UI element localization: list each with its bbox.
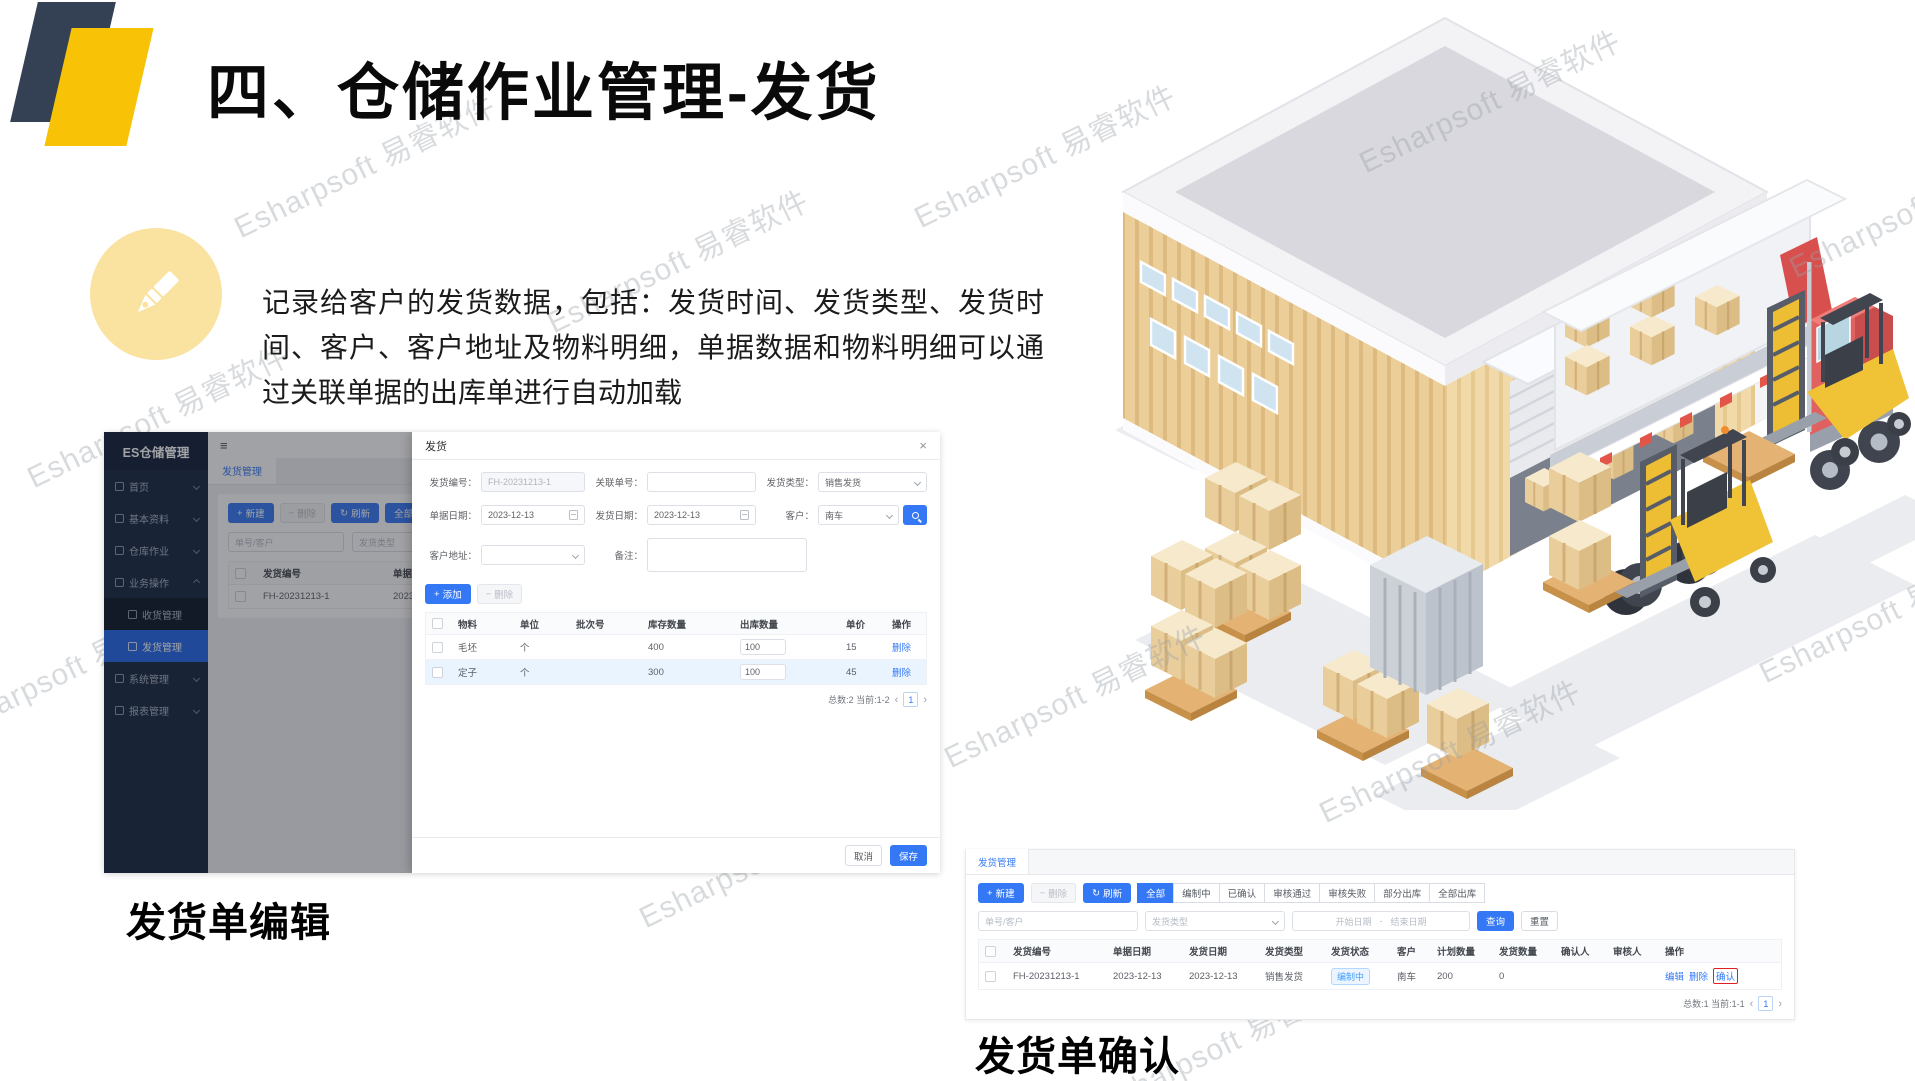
tab-shipping-management[interactable]: 发货管理 — [966, 849, 1029, 874]
minus-icon: − — [486, 589, 492, 600]
prev-page-icon[interactable]: ‹ — [895, 694, 899, 706]
chevron-down-icon — [1272, 917, 1279, 924]
ship-type-select[interactable]: 销售发货 — [818, 472, 927, 492]
pagination-summary: 总数:1 当前:1-1 — [1683, 997, 1745, 1010]
remark-textarea[interactable] — [647, 538, 807, 572]
table-header-row: 发货编号 单据日期 发货日期 发货类型 发货状态 客户 计划数量 发货数量 确认… — [979, 940, 1781, 963]
status-filter-approved[interactable]: 审核通过 — [1264, 883, 1320, 903]
pen-bullet-circle — [90, 228, 222, 360]
field-customer: 客户： 南车 — [762, 505, 927, 525]
save-button[interactable]: 保存 — [890, 845, 927, 866]
status-filter-rejected[interactable]: 审核失败 — [1319, 883, 1375, 903]
material-table: 物料 单位 批次号 库存数量 出库数量 单价 操作 毛坯 个 400 100 — [425, 612, 927, 685]
status-filter-group: 全部 编制中 已确认 审核通过 审核失败 部分出库 全部出库 — [1138, 883, 1485, 903]
material-row[interactable]: 毛坯 个 400 100 15 删除 — [426, 635, 926, 660]
pen-icon — [124, 262, 188, 326]
container — [1370, 536, 1483, 695]
confirm-highlight-box: 确认 — [1713, 968, 1738, 984]
ship-date-input[interactable]: 2023-12-13 — [647, 505, 756, 525]
calendar-icon — [740, 510, 749, 520]
page-title: 四、仓储作业管理-发货 — [207, 42, 881, 132]
delete-button[interactable]: − 删除 — [1031, 883, 1077, 903]
cancel-button[interactable]: 取消 — [845, 845, 882, 866]
caption-confirm: 发货单确认 — [975, 1024, 1180, 1081]
prev-page-icon[interactable]: ‹ — [1750, 998, 1754, 1010]
next-page-icon[interactable]: › — [1778, 998, 1782, 1010]
status-filter-all-out[interactable]: 全部出库 — [1429, 883, 1485, 903]
status-filter-confirmed[interactable]: 已确认 — [1219, 883, 1266, 903]
chevron-down-icon — [572, 551, 579, 558]
modal-footer: 取消 保存 — [412, 837, 940, 873]
related-no-input[interactable] — [647, 472, 756, 492]
doc-date-input[interactable]: 2023-12-13 — [481, 505, 585, 525]
field-remark: 备注： — [591, 538, 927, 572]
caption-edit: 发货单编辑 — [126, 890, 331, 948]
search-icon — [912, 512, 919, 519]
warehouse-loading-illustration — [1055, 0, 1915, 810]
status-filter-partial-out[interactable]: 部分出库 — [1374, 883, 1430, 903]
field-related-no: 关联单号： — [591, 472, 756, 492]
page-number[interactable]: 1 — [903, 692, 918, 707]
row-checkbox[interactable] — [426, 635, 452, 659]
status-filter-all[interactable]: 全部 — [1137, 883, 1174, 903]
date-range-input[interactable]: 开始日期 - 结束日期 — [1292, 911, 1470, 931]
close-icon[interactable]: × — [919, 438, 927, 453]
header-checkbox[interactable] — [979, 940, 1007, 962]
confirm-toolbar: + 新建 − 删除 ↻ 刷新 全部 编制中 已确认 审核通过 审核失败 部分出库… — [966, 875, 1794, 903]
modal-backdrop — [104, 432, 208, 873]
reset-button[interactable]: 重置 — [1521, 911, 1558, 931]
row-checkbox[interactable] — [979, 963, 1007, 989]
modal-form: 发货编号： FH-20231213-1 关联单号： 发货类型： 销售发货 — [412, 460, 940, 572]
field-customer-address: 客户地址： — [425, 538, 585, 572]
modal-item-toolbar: + 添加 − 删除 — [412, 572, 940, 604]
customer-select[interactable]: 南车 — [818, 505, 899, 525]
modal-pagination: 总数:2 当前:1-2 ‹ 1 › — [412, 692, 927, 707]
customer-search-button[interactable] — [903, 505, 927, 525]
field-ship-no: 发货编号： FH-20231213-1 — [425, 472, 585, 492]
refresh-icon: ↻ — [1092, 888, 1100, 899]
search-button[interactable]: 查询 — [1477, 911, 1514, 931]
out-qty-input[interactable]: 100 — [740, 639, 786, 655]
out-qty-input[interactable]: 100 — [740, 664, 786, 680]
delete-link[interactable]: 删除 — [1689, 969, 1708, 983]
table-header-row: 物料 单位 批次号 库存数量 出库数量 单价 操作 — [426, 613, 926, 635]
field-doc-date: 单据日期： 2023-12-13 — [425, 505, 585, 525]
description-text: 记录给客户的发货数据，包括：发货时间、发货类型、发货时间、客户、客户地址及物料明… — [262, 280, 1044, 415]
next-page-icon[interactable]: › — [923, 694, 927, 706]
customer-address-select[interactable] — [481, 545, 585, 565]
row-actions: 编辑 删除 确认 — [1659, 963, 1769, 989]
confirm-filters: 单号/客户 发货类型 开始日期 - 结束日期 查询 重置 — [966, 903, 1794, 931]
plus-icon: + — [434, 589, 440, 600]
modal-header: 发货 × — [412, 432, 940, 460]
header-checkbox[interactable] — [426, 613, 452, 634]
new-button[interactable]: + 新建 — [978, 883, 1024, 903]
confirm-table: 发货编号 单据日期 发货日期 发货类型 发货状态 客户 计划数量 发货数量 确认… — [978, 939, 1782, 990]
refresh-button[interactable]: ↻ 刷新 — [1083, 883, 1131, 903]
calendar-icon — [569, 510, 578, 520]
field-ship-date: 发货日期： 2023-12-13 — [591, 505, 756, 525]
edit-screen-window: ES仓储管理 首页 基本资料 仓库作业 业务操作 — [104, 432, 940, 873]
minus-icon: − — [1040, 888, 1046, 899]
status-filter-drafting[interactable]: 编制中 — [1173, 883, 1220, 903]
plus-icon: + — [987, 888, 993, 899]
ship-no-input[interactable]: FH-20231213-1 — [481, 472, 585, 492]
edit-link[interactable]: 编辑 — [1665, 969, 1684, 983]
modal-title: 发货 — [425, 438, 447, 454]
field-ship-type: 发货类型： 销售发货 — [762, 472, 927, 492]
page-number[interactable]: 1 — [1758, 996, 1773, 1011]
confirm-pagination: 总数:1 当前:1-1 ‹ 1 › — [966, 996, 1782, 1011]
shipping-modal: 发货 × 发货编号： FH-20231213-1 关联单号： 发货类型： — [412, 432, 940, 873]
status-badge: 编制中 — [1331, 968, 1370, 985]
delete-row-link[interactable]: 删除 — [892, 640, 911, 654]
confirm-link[interactable]: 确认 — [1716, 972, 1735, 983]
chevron-down-icon — [886, 511, 893, 518]
delete-item-button[interactable]: − 删除 — [477, 584, 523, 604]
table-row[interactable]: FH-20231213-1 2023-12-13 2023-12-13 销售发货… — [979, 963, 1781, 990]
material-row[interactable]: 定子 个 300 100 45 删除 — [426, 660, 926, 685]
tab-strip: 发货管理 — [966, 850, 1794, 875]
slide: Esharpsoft 易睿软件 Esharpsoft 易睿软件 Esharpso… — [0, 0, 1915, 1081]
delete-row-link[interactable]: 删除 — [892, 665, 911, 679]
add-item-button[interactable]: + 添加 — [425, 584, 471, 604]
pagination-summary: 总数:2 当前:1-2 — [828, 693, 890, 706]
order-customer-input[interactable]: 单号/客户 — [978, 911, 1138, 931]
ship-type-select[interactable]: 发货类型 — [1145, 911, 1285, 931]
row-checkbox[interactable] — [426, 660, 452, 684]
chevron-down-icon — [914, 478, 921, 485]
confirm-screen-window: 发货管理 + 新建 − 删除 ↻ 刷新 全部 编制中 已确认 审核通过 审核失败… — [965, 849, 1795, 1020]
